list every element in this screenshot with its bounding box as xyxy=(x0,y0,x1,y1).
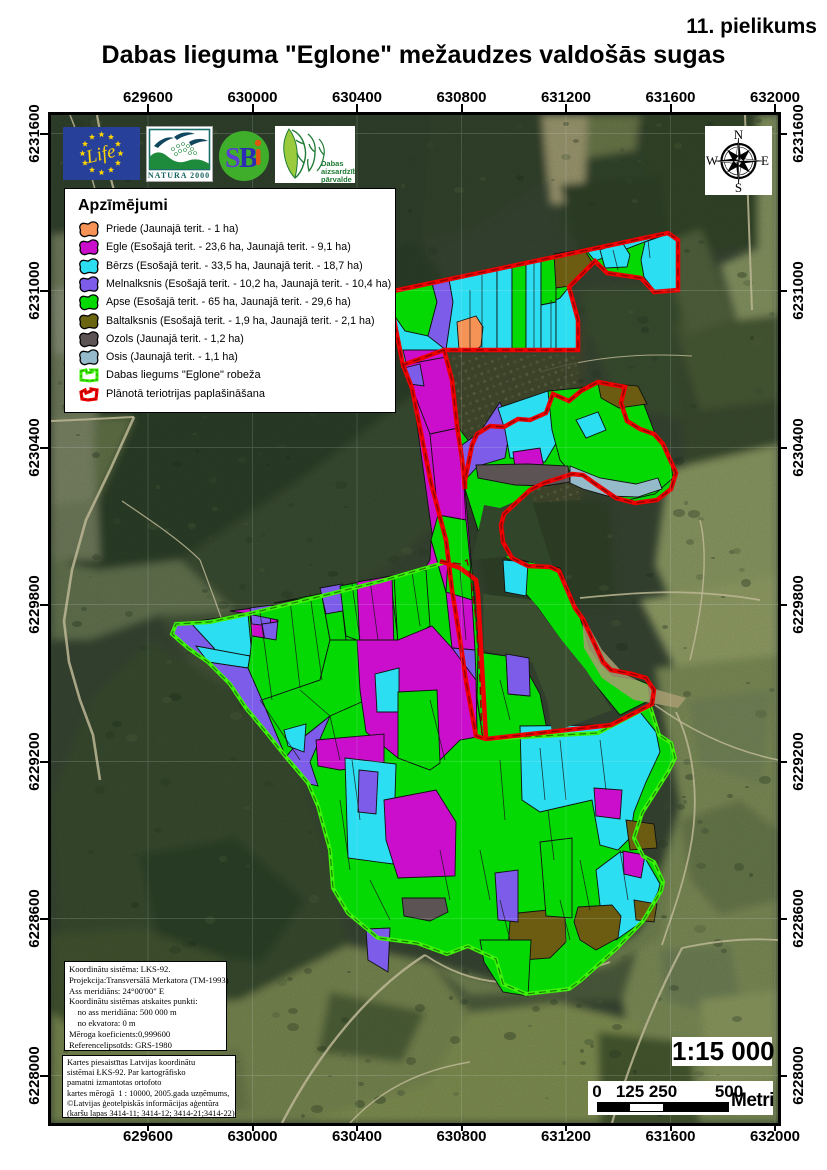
svg-text:6231000: 6231000 xyxy=(790,261,807,319)
svg-text:6229800: 6229800 xyxy=(790,575,807,633)
svg-text:NATURA 2000: NATURA 2000 xyxy=(148,171,210,180)
svg-text:E: E xyxy=(761,153,769,168)
svg-text:6228000: 6228000 xyxy=(790,1046,807,1104)
svg-text:6229200: 6229200 xyxy=(790,732,807,790)
svg-text:pārvalde: pārvalde xyxy=(321,175,352,183)
svg-text:Life: Life xyxy=(83,141,118,169)
svg-text:N: N xyxy=(734,127,744,142)
svg-text:B: B xyxy=(239,143,258,174)
svg-text:W: W xyxy=(706,153,719,168)
svg-text:6230400: 6230400 xyxy=(790,418,807,476)
svg-text:6228600: 6228600 xyxy=(790,889,807,947)
svg-text:6231600: 6231600 xyxy=(790,104,807,162)
